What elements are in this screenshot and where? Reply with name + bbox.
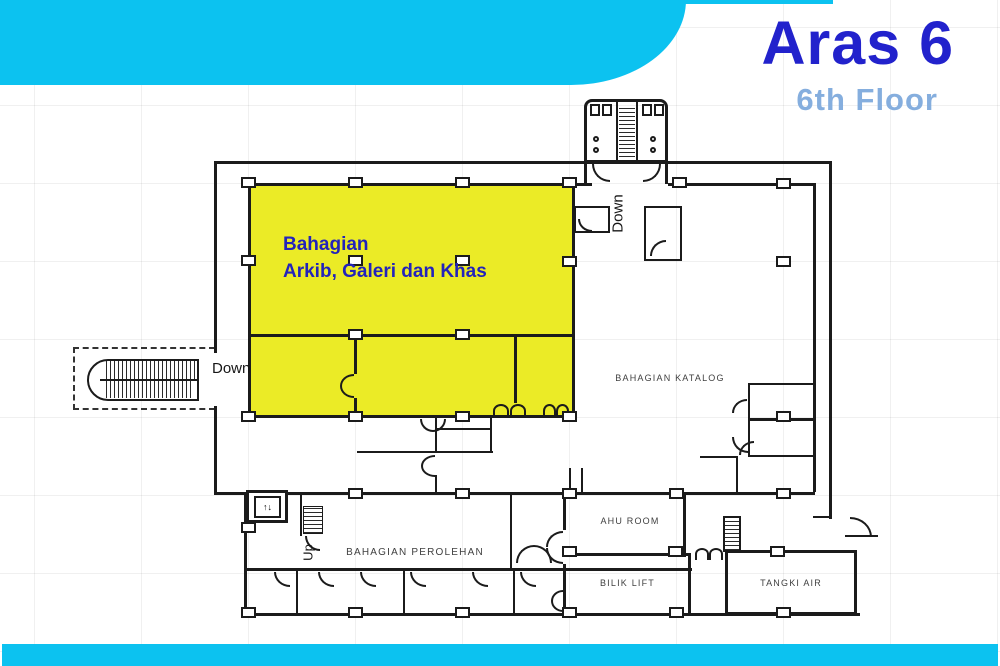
elevator: ↑↓ [246, 490, 288, 523]
room-label-ahu: AHU ROOM [575, 516, 685, 526]
wall [636, 101, 638, 161]
door-arc [695, 548, 709, 560]
fixture [593, 147, 599, 153]
wall [248, 334, 575, 337]
column-marker [562, 411, 577, 422]
header-bar [0, 0, 686, 85]
wall [813, 516, 832, 518]
wall [244, 613, 860, 616]
wall [214, 406, 217, 495]
column-marker [669, 488, 684, 499]
wall [700, 456, 738, 458]
wall [513, 570, 515, 615]
highlight-label-line1: Bahagian [283, 231, 487, 258]
column-marker [776, 411, 791, 422]
wall [514, 336, 517, 403]
wall [490, 418, 492, 453]
column-marker [562, 546, 577, 557]
column-marker [455, 488, 470, 499]
wall [437, 428, 492, 430]
door-arc [543, 404, 556, 418]
wall [216, 161, 832, 164]
column-marker [241, 255, 256, 266]
column-marker [776, 178, 791, 189]
stair-treads [106, 381, 191, 398]
up-annotation: Up [301, 533, 316, 573]
column-marker [562, 488, 577, 499]
column-marker [770, 546, 785, 557]
wall [435, 475, 437, 494]
wall [665, 161, 668, 184]
column-marker [241, 177, 256, 188]
column-marker [348, 607, 363, 618]
column-marker [241, 522, 256, 533]
column-marker [455, 607, 470, 618]
highlight-area-arkib [248, 183, 575, 418]
column-marker [562, 607, 577, 618]
wall [829, 161, 832, 519]
column-marker [348, 488, 363, 499]
wall [581, 468, 583, 494]
column-marker [348, 329, 363, 340]
wall [736, 458, 738, 492]
column-marker [241, 607, 256, 618]
fixture [650, 147, 656, 153]
wall [584, 161, 587, 184]
stair-treads [106, 361, 197, 379]
room-label-perolehan: BAHAGIAN PEROLEHAN [340, 547, 490, 558]
wall [214, 161, 217, 353]
wall [688, 555, 691, 616]
column-marker [668, 546, 683, 557]
column-marker [669, 607, 684, 618]
column-marker [776, 488, 791, 499]
column-marker [348, 177, 363, 188]
column-marker [348, 411, 363, 422]
fixture [593, 136, 599, 142]
door-arc [493, 404, 509, 418]
column-marker [455, 411, 470, 422]
column-marker [562, 177, 577, 188]
toilet-stall [590, 104, 600, 116]
door-arc [709, 548, 723, 560]
wall [668, 183, 815, 186]
highlight-label: Bahagian Arkib, Galeri dan Khas [283, 231, 487, 285]
slide-title: Aras 6 [761, 8, 954, 78]
column-marker [562, 256, 577, 267]
wall [296, 570, 298, 615]
toilet-stall [602, 104, 612, 116]
stair-up [303, 506, 323, 534]
column-marker [672, 177, 687, 188]
column-marker [776, 256, 791, 267]
column-marker [241, 411, 256, 422]
wall [300, 492, 302, 536]
elevator-icon: ↑↓ [254, 496, 281, 518]
room-label-katalog: BAHAGIAN KATALOG [605, 373, 735, 383]
highlight-label-line2: Arkib, Galeri dan Khas [283, 258, 487, 285]
toilet-stall [654, 104, 664, 116]
fixture [650, 136, 656, 142]
column-marker [776, 607, 791, 618]
slide-subtitle: 6th Floor [796, 82, 938, 118]
wall [510, 492, 512, 570]
room-label-tangki: TANGKI AIR [730, 578, 852, 588]
toilet-stall [642, 104, 652, 116]
down-annotation-left: Down [212, 360, 250, 377]
column-marker [455, 177, 470, 188]
door-opening [354, 374, 357, 398]
wall [616, 101, 618, 161]
slide-canvas: { "slide": { "title": "Aras 6", "subtitl… [0, 0, 1000, 666]
wall [357, 451, 493, 453]
room-label-lift: BILIK LIFT [570, 578, 685, 588]
footer-bar [2, 644, 998, 666]
door-arc [510, 404, 526, 418]
wall [403, 570, 405, 615]
stair-treads [619, 107, 635, 157]
stair-landing-line [100, 379, 197, 381]
wall [214, 492, 815, 495]
column-marker [455, 329, 470, 340]
vent-shaft [723, 516, 741, 552]
down-annotation-top: Down [610, 174, 627, 254]
small-room [748, 419, 815, 457]
